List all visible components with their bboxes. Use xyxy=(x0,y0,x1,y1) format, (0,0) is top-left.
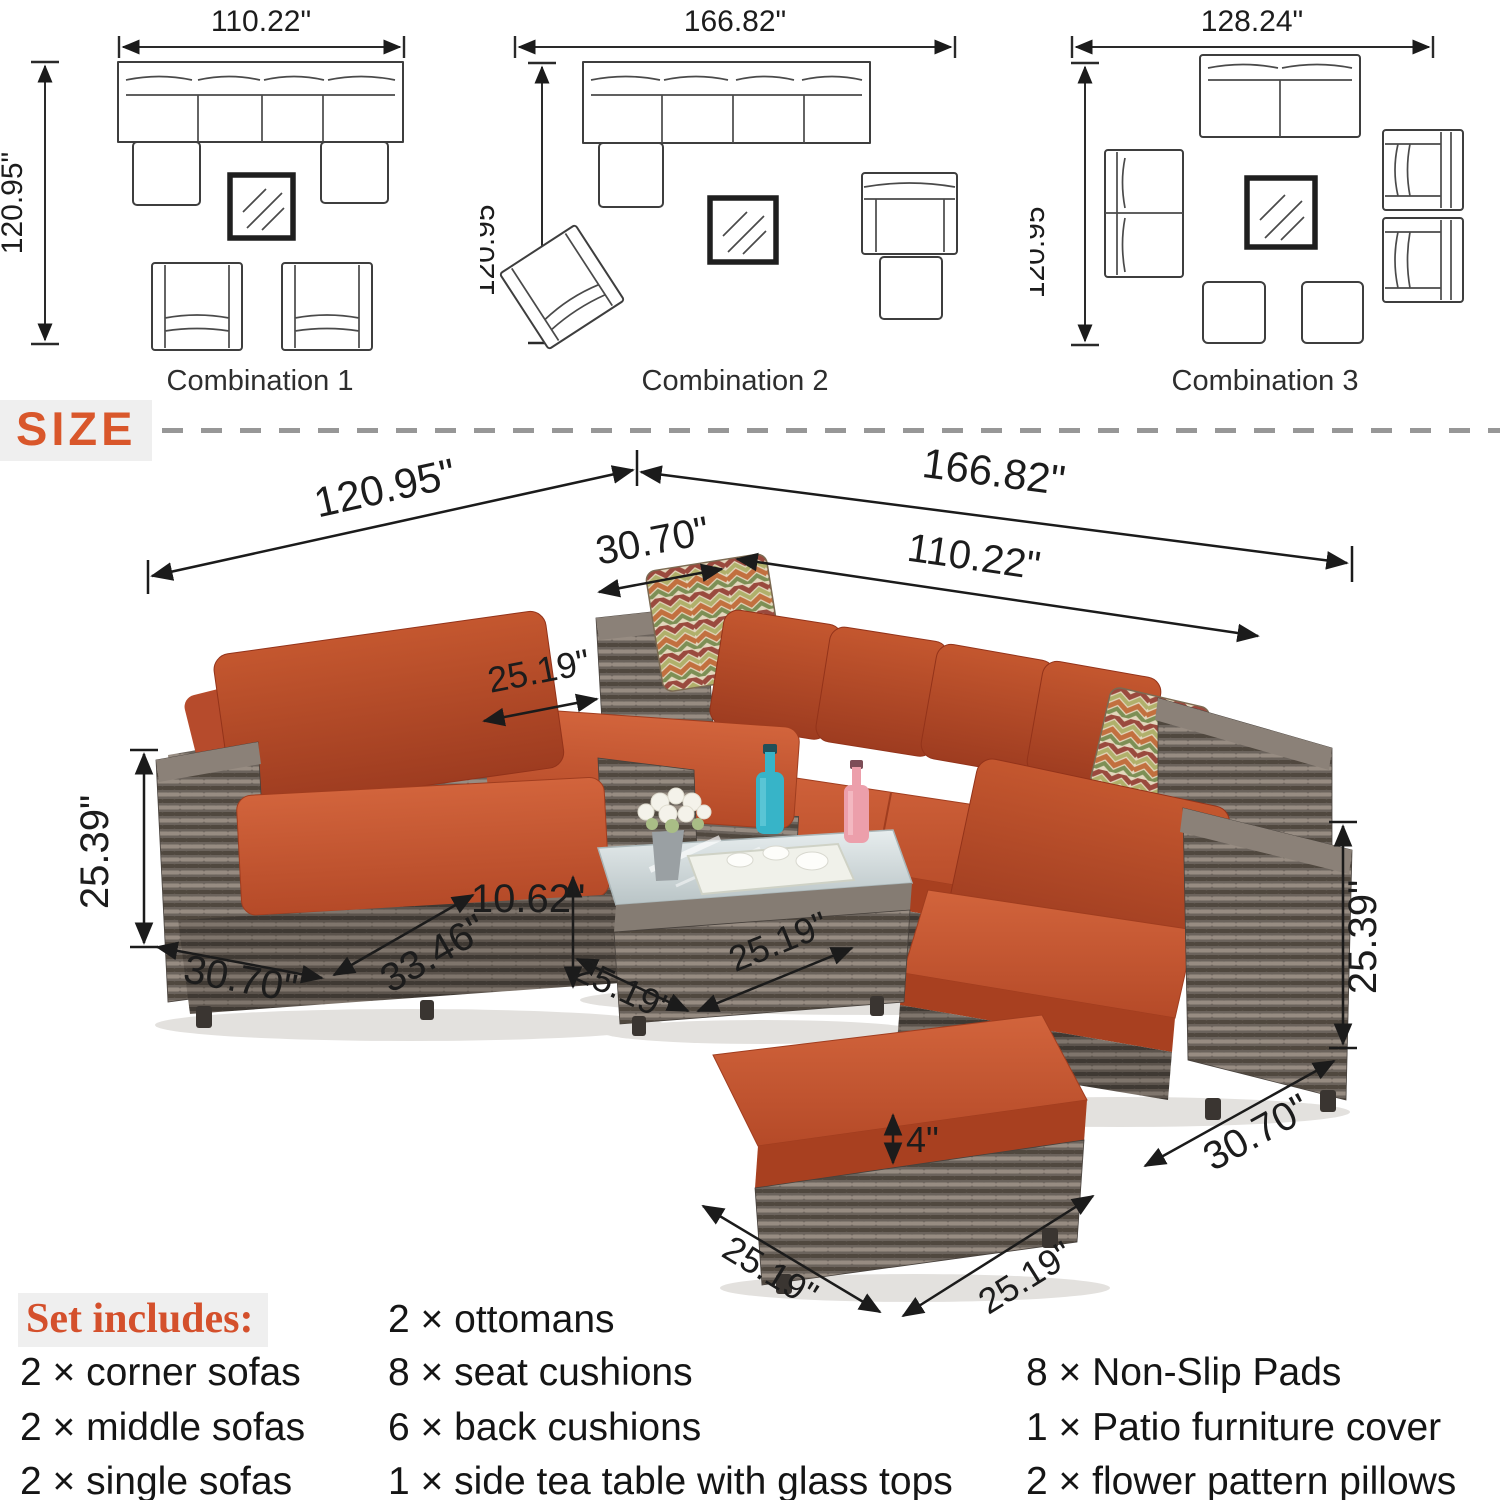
combo3-height-label: 120.95" xyxy=(1030,196,1051,298)
combo3-table-topview xyxy=(1247,178,1315,247)
include-item-middle-sofas: 2 × middle sofas xyxy=(20,1406,305,1450)
combo3-chair2-topview xyxy=(1383,218,1463,302)
combo3-chair-topview xyxy=(1383,130,1463,210)
combo1-height-label: 120.95" xyxy=(0,152,29,254)
include-item-single-sofas: 2 × single sofas xyxy=(20,1460,292,1500)
include-item-nonslip-pads: 8 × Non-Slip Pads xyxy=(1026,1351,1341,1395)
combo3-loveseat-topview xyxy=(1200,55,1360,137)
pink-bottle xyxy=(844,760,869,843)
include-item-tea-table: 1 × side tea table with glass tops xyxy=(388,1460,953,1500)
dim-left-chair-height: 25.39" xyxy=(73,795,117,909)
combo3-ottoman-topview xyxy=(1203,282,1265,343)
combo3-caption: Combination 3 xyxy=(1172,365,1359,397)
combo3-two-piece-sofa-topview xyxy=(1105,150,1183,277)
include-item-back-cushions: 6 × back cushions xyxy=(388,1406,701,1450)
combination-2-diagram: 166.82" 120.95" Combination 2 xyxy=(480,0,1000,400)
include-item-seat-cushions: 8 × seat cushions xyxy=(388,1351,693,1395)
dim-overall-right: 166.82" xyxy=(920,440,1068,504)
combination-3-diagram: 128.24" 120.95" Combination 3 xyxy=(1030,0,1500,400)
dim-right-chair-height: 25.39" xyxy=(1341,880,1385,994)
combo2-chair-topview xyxy=(862,173,957,319)
combo1-chair-topview xyxy=(152,263,242,350)
combo1-chair2-topview xyxy=(282,263,372,350)
set-includes-list: Set includes: 2 × corner sofas 2 × middl… xyxy=(0,1293,1500,1500)
combo2-width-label: 166.82" xyxy=(684,5,786,38)
dim-overall-left: 120.95" xyxy=(310,449,460,526)
include-item-furniture-cover: 1 × Patio furniture cover xyxy=(1026,1406,1441,1450)
dashed-divider-line xyxy=(162,428,1500,433)
combo2-caption: Combination 2 xyxy=(642,365,829,397)
include-item-ottomans: 2 × ottomans xyxy=(388,1298,615,1342)
dim-table-height: 10.62" xyxy=(471,877,585,921)
combo1-caption: Combination 1 xyxy=(167,365,354,397)
include-item-corner-sofas: 2 × corner sofas xyxy=(20,1351,301,1395)
dim-cushion-thickness: 4" xyxy=(906,1119,939,1160)
dim-sofa-run: 110.22" xyxy=(905,526,1044,589)
combo1-table-topview xyxy=(230,175,293,238)
combo2-sofa-topview xyxy=(583,62,870,207)
product-dimension-sheet: 110.22" 120.95" Combination 1 166.82" xyxy=(0,0,1500,1500)
combo2-table-topview xyxy=(710,198,776,262)
annotated-product-photo: 120.95" 166.82" 30.70" 110.22" 25.19" 25… xyxy=(0,440,1500,1320)
combo2-height-label: 120.95" xyxy=(480,194,501,296)
combo1-width-label: 110.22" xyxy=(211,5,311,38)
set-includes-heading: Set includes: xyxy=(18,1293,268,1347)
combo2-tilted-chair-topview xyxy=(500,225,624,349)
combo3-width-label: 128.24" xyxy=(1201,5,1303,38)
include-item-flower-pillows: 2 × flower pattern pillows xyxy=(1026,1460,1456,1500)
combination-1-diagram: 110.22" 120.95" Combination 1 xyxy=(0,0,470,400)
combo3-ottoman2-topview xyxy=(1302,282,1363,343)
